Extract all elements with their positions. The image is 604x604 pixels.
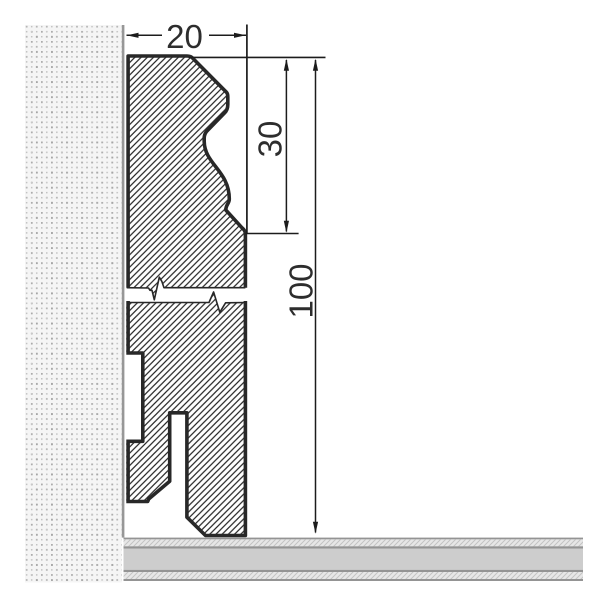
svg-text:20: 20 (166, 18, 203, 55)
svg-text:30: 30 (251, 121, 288, 158)
svg-text:100: 100 (282, 263, 319, 318)
